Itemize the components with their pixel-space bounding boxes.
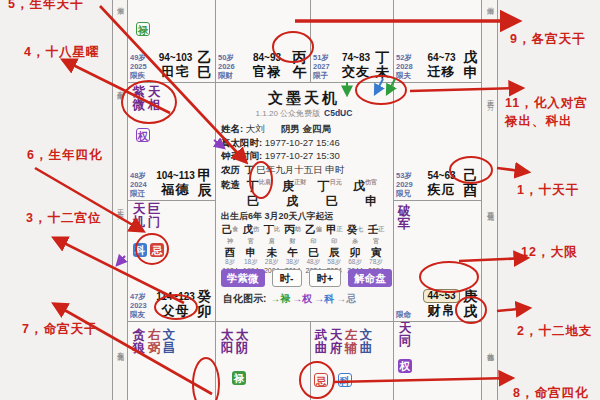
palace-name: 财帛 xyxy=(421,303,462,319)
app-version: 1.1.20 公众免费版C5dUC xyxy=(215,108,393,119)
flow-palace: 限子 xyxy=(313,71,328,80)
ke-badge: 科 xyxy=(338,373,352,387)
ji-badge: 忌 xyxy=(314,373,328,387)
flow-year: 2028 xyxy=(396,62,413,71)
decade-luck-table: 己食神酉8岁1984戊伤官申18岁1994丁比肩未28岁2004丙劫财午38岁2… xyxy=(220,223,386,275)
star-name: 天同 xyxy=(398,322,412,348)
luck-pillar: 己食神酉8岁1984 xyxy=(220,223,240,275)
flow-palace: 限财 xyxy=(218,71,233,80)
star-name: 天相 xyxy=(147,86,161,112)
palace-stem: 乙 xyxy=(196,50,213,65)
luck-pillar: 壬正官寅78岁2054 xyxy=(366,223,386,275)
legend-label: 自化图示: xyxy=(223,293,266,304)
flow-age: 49岁 xyxy=(130,53,146,62)
decade-range: 114~123 xyxy=(155,291,196,303)
interpret-chart-button[interactable]: 解命盘 xyxy=(348,269,392,287)
compass-label-ese: 东偏南 xyxy=(113,85,127,88)
quan-badge: 权 xyxy=(398,359,412,373)
star-list: 天机巨门 xyxy=(132,203,161,229)
flow-year: 2024 xyxy=(130,180,147,189)
annotation-arrow-2 xyxy=(497,308,529,311)
flow-palace: 限疾 xyxy=(130,71,145,80)
bazi-branches-row: 巳戌巳申 xyxy=(247,193,377,210)
star-list: 紫微天相 xyxy=(132,86,161,112)
annotation-11-transform-line2: 禄出、科出 xyxy=(505,113,573,130)
annotation-6-birth-four-transforms: 6，生年四化 xyxy=(27,147,102,164)
ziwei-chart-screenshot: 禄 49岁2025限疾 94~103田宅 乙巳 50岁2026限财 84~93官… xyxy=(0,0,600,400)
flow-year: 2025 xyxy=(130,62,147,71)
compass-strip-left xyxy=(112,0,127,400)
decade-range: 54~63 xyxy=(421,170,462,182)
lunar-label: 农历 xyxy=(221,164,240,175)
current-decade-range: 44~53 xyxy=(423,289,459,303)
luck-pillar: 戊伤官申18岁1994 xyxy=(241,223,261,275)
luck-pillar: 癸七杀卯68岁2044 xyxy=(345,223,365,275)
ji-badge: 忌 xyxy=(150,243,164,257)
annotation-1-ten-stems: 1，十天干 xyxy=(517,182,579,199)
flow-palace: 限友 xyxy=(130,310,145,319)
flow-age: 47岁 xyxy=(130,292,146,301)
annotation-4-eighteen-stars: 4，十八星曜 xyxy=(24,44,99,61)
bazi-branch: 巳 xyxy=(247,193,259,210)
flow-palace: 限兄 xyxy=(396,189,411,198)
sun-time: 1977-10-27 15:46 xyxy=(265,137,340,148)
annotation-arrow-1 xyxy=(497,168,528,172)
star-list: 破军 xyxy=(397,205,411,231)
star-list: 天同 xyxy=(398,322,412,348)
legend-ji: →忌 xyxy=(336,293,356,304)
palace-cell-si: 禄 49岁2025限疾 94~103田宅 乙巳 xyxy=(127,0,215,82)
star-list: 贪狼右弼文昌 xyxy=(132,329,176,355)
star-name: 武曲 xyxy=(314,329,328,355)
palace-stem: 癸 xyxy=(196,289,213,304)
learn-ziwei-button[interactable]: 学紫微 xyxy=(221,269,265,287)
star-list: 太阳太阴 xyxy=(220,329,249,355)
legend-quan: →权 xyxy=(292,293,312,304)
palace-branch: 酉 xyxy=(462,183,479,198)
palace-cell-xu: 破军 限命 44~53财帛 庚戌 xyxy=(393,200,481,321)
annotation-9-palace-stems: 9，各宫天干 xyxy=(510,31,585,48)
palace-branch: 未 xyxy=(374,65,391,80)
lu-badge: 禄 xyxy=(136,22,150,36)
compass-label-w: 正西方 xyxy=(483,95,497,98)
gender-bureau: 阴男 金四局 xyxy=(281,123,331,134)
clock-time-label: 钟表时间: xyxy=(221,150,262,161)
palace-cell-wei: 51岁2027限子 74~83交友 丁未 xyxy=(310,0,393,82)
flow-age: 50岁 xyxy=(218,53,234,62)
star-name: 文昌 xyxy=(162,329,176,355)
palace-cell-mao: 天机巨门 科忌 47岁2023限友 114~123父母 癸卯 xyxy=(127,200,215,321)
flow-age: 53岁 xyxy=(396,171,412,180)
luck-pillar: 甲正印辰58岁2034 xyxy=(324,223,344,275)
flow-year: 2023 xyxy=(130,301,147,310)
luck-pillar: 丙劫财午38岁2014 xyxy=(283,223,303,275)
palace-stem: 庚 xyxy=(462,289,479,304)
star-name: 太阴 xyxy=(235,329,249,355)
star-name: 文曲 xyxy=(359,329,373,355)
chart-code: C5dUC xyxy=(324,108,352,118)
lunar-date: 巳年九月十五日 申时 xyxy=(256,164,344,175)
palace-name: 疾厄 xyxy=(421,182,462,198)
star-name: 天机 xyxy=(132,203,146,229)
compass-strip-right xyxy=(481,0,497,400)
flow-year: 2029 xyxy=(396,180,413,189)
compass-label-ene: 东偏北 xyxy=(113,346,127,349)
palace-name: 官禄 xyxy=(243,64,291,80)
star-name: 紫微 xyxy=(132,86,146,112)
compass-label-e: 正东方 xyxy=(113,204,127,207)
annotation-3-twelve-palaces: 3，十二宫位 xyxy=(26,210,101,227)
compass-label-nnw: 北偏西 xyxy=(483,347,497,350)
palace-stem: 戊 xyxy=(462,50,479,65)
palace-cell-yin: 贪狼右弼文昌 xyxy=(127,321,215,400)
decade-range: 104~113 xyxy=(155,170,196,182)
flow-year: 2027 xyxy=(313,62,330,71)
palace-stem: 丙 xyxy=(291,50,308,65)
star-name: 巨门 xyxy=(147,203,161,229)
quan-badge: 权 xyxy=(136,128,150,142)
palace-cell-shen: 52岁2028限夫 64~73迁移 戊申 xyxy=(393,0,481,82)
ke-badge: 科 xyxy=(133,243,147,257)
palace-name: 田宅 xyxy=(155,64,196,80)
palace-name: 交友 xyxy=(338,64,374,80)
palace-stem: 甲 xyxy=(196,168,213,183)
annotation-12-decade-limit: 12，大限 xyxy=(521,244,577,261)
self-transform-legend: 自化图示:→禄→权→科→忌 xyxy=(223,292,356,306)
app-title: 文墨天机 xyxy=(215,89,393,108)
palace-branch: 辰 xyxy=(196,183,213,198)
flow-palace: 限命 xyxy=(396,310,411,319)
star-list: 武曲天府左辅文曲 xyxy=(314,329,373,355)
palace-cell-wu: 50岁2026限财 84~93官禄 丙午 xyxy=(215,0,310,82)
palace-cell-zi: 武曲天府左辅文曲 忌科 xyxy=(310,321,393,400)
luck-pillar: 丁比肩未28岁2004 xyxy=(262,223,282,275)
annotation-5-birth-year-stem: 5，生年天干 xyxy=(8,0,83,13)
decade-range: 94~103 xyxy=(155,52,196,64)
decade-range: 64~73 xyxy=(421,52,462,64)
flow-age: 52岁 xyxy=(396,53,412,62)
palace-stem: 丁 xyxy=(374,50,391,65)
legend-ke: →科 xyxy=(314,293,334,304)
palace-cell-you: 53岁2029限兄 54~63疾厄 己酉 xyxy=(393,82,481,200)
chart-center-panel: 文墨天机 1.1.20 公众免费版C5dUC 姓名: 大刘阴男 金四局 真太阳时… xyxy=(215,82,393,321)
flow-palace: 限夫 xyxy=(396,71,411,80)
palace-branch: 戌 xyxy=(462,304,479,319)
star-name: 贪狼 xyxy=(132,329,146,355)
annotation-2-twelve-branches: 2，十二地支 xyxy=(517,323,592,340)
palace-cell-chen: 紫微天相 权 48岁2024限迁 104~113福德 甲辰 xyxy=(127,82,215,200)
star-name: 破军 xyxy=(397,205,411,231)
palace-branch: 巳 xyxy=(196,65,213,80)
star-name: 天府 xyxy=(329,329,343,355)
flow-age: 51岁 xyxy=(313,53,329,62)
palace-cell-chou: 太阳太阴 禄 xyxy=(215,321,310,400)
palace-branch: 午 xyxy=(291,65,308,80)
flow-year: 2026 xyxy=(218,62,235,71)
person-name: 大刘 xyxy=(246,123,265,134)
sun-time-label: 真太阳时: xyxy=(221,137,262,148)
palace-name: 福德 xyxy=(155,182,196,198)
star-name: 左辅 xyxy=(344,329,358,355)
annotation-11-transform-line1: 11，化入对宫 xyxy=(505,95,588,112)
luck-start-note: 出生后6年 3月20天八字起运 xyxy=(221,210,334,223)
name-label: 姓名: xyxy=(221,123,243,134)
palace-stem: 己 xyxy=(462,168,479,183)
birth-year-stem: 丁 xyxy=(243,164,257,175)
luck-pillar: 乙偏印巳48岁2024 xyxy=(303,223,323,275)
palace-name: 父母 xyxy=(155,303,196,319)
star-name: 右弼 xyxy=(147,329,161,355)
hour-minus-button[interactable]: 时- xyxy=(272,269,302,287)
compass-label-wnw: 西偏北 xyxy=(483,206,497,209)
clock-time: 1977-10-27 15:30 xyxy=(265,150,340,161)
bazi-branch: 申 xyxy=(365,193,377,210)
annotation-8-life-palace-transforms: 8，命宫四化 xyxy=(513,385,588,400)
flow-palace: 限迁 xyxy=(130,189,145,198)
lu-badge: 禄 xyxy=(232,371,246,385)
compass-label-ssw: 偏南 xyxy=(483,1,497,3)
hour-plus-button[interactable]: 时+ xyxy=(309,269,342,287)
palace-branch: 卯 xyxy=(196,304,213,319)
palace-cell-hai: 天同 权 xyxy=(393,321,481,400)
palace-name: 迁移 xyxy=(421,64,462,80)
decade-range: 84~93 xyxy=(243,52,291,64)
flow-age: 48岁 xyxy=(130,171,146,180)
palace-branch: 申 xyxy=(462,65,479,80)
annotation-7-life-palace-stem: 7，命宫天干 xyxy=(22,321,97,338)
qianzao-label: 乾造 xyxy=(221,179,240,190)
bazi-branch: 巳 xyxy=(326,193,338,210)
star-name: 太阳 xyxy=(220,329,234,355)
decade-range: 74~83 xyxy=(338,52,374,64)
compass-label-se: 偏东 xyxy=(113,1,127,3)
legend-lu: →禄 xyxy=(270,293,290,304)
bazi-branch: 戌 xyxy=(286,193,298,210)
